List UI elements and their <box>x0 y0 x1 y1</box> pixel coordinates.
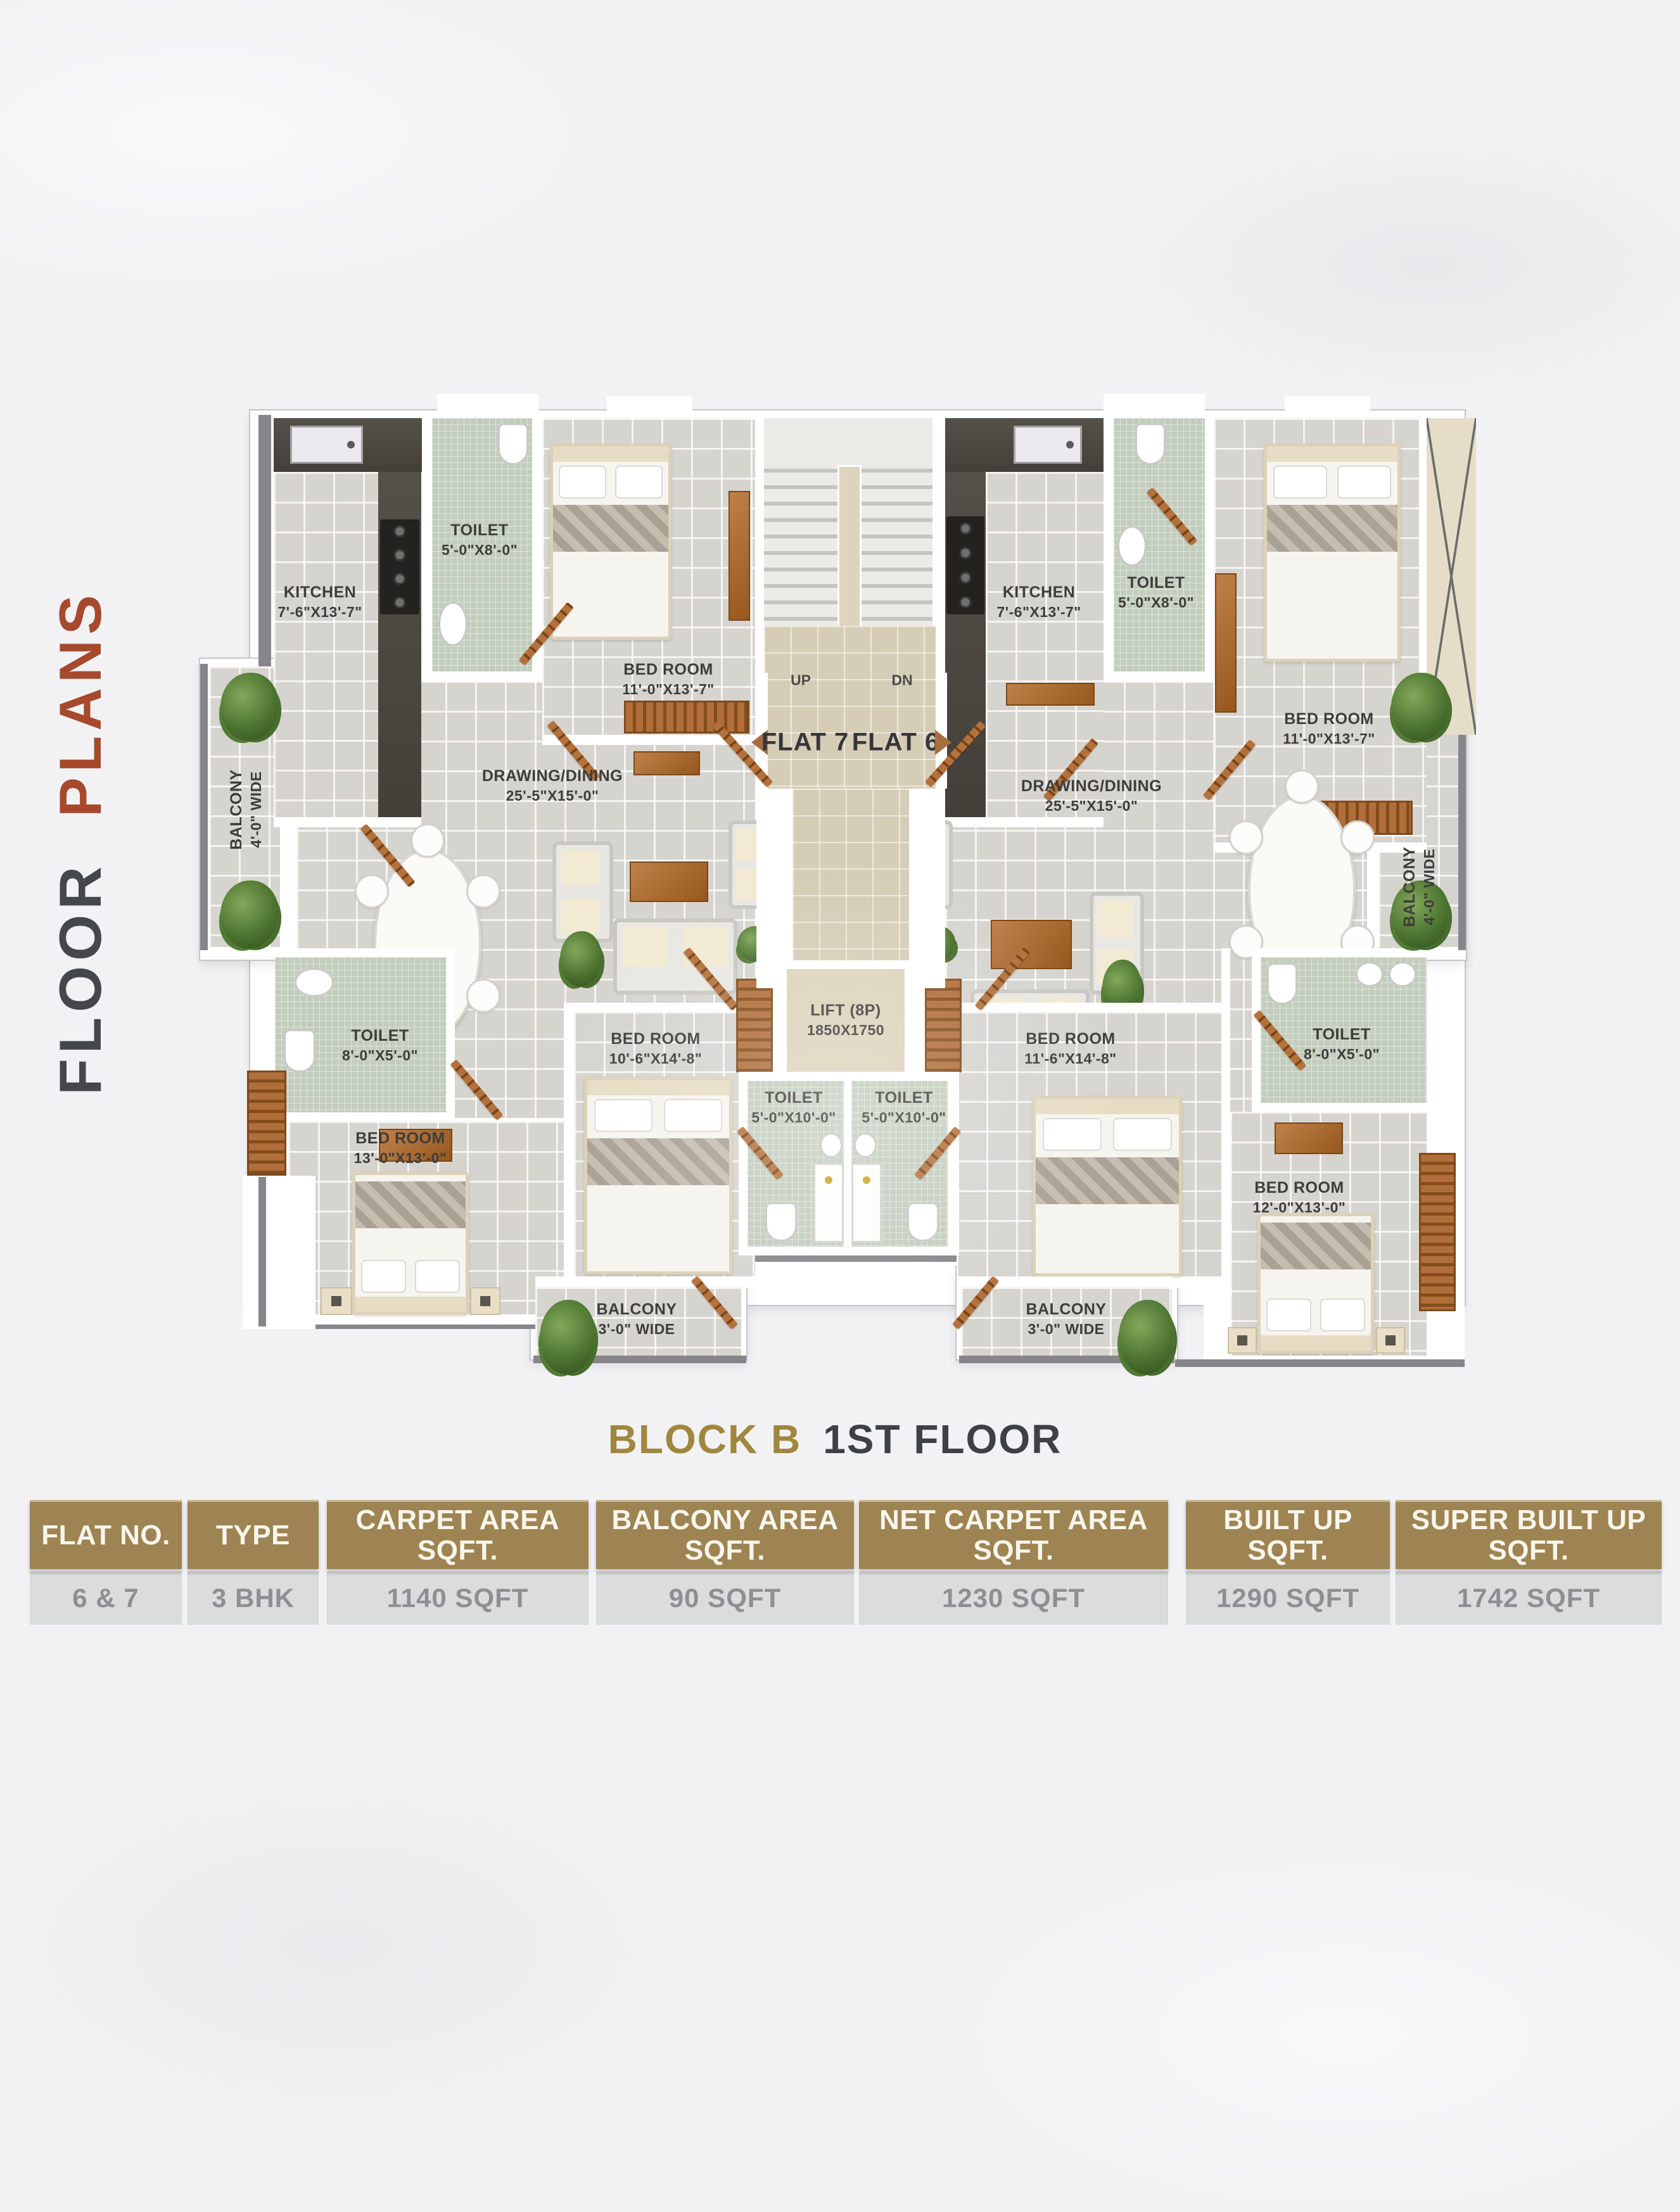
bed-headboard <box>1267 447 1397 462</box>
wall <box>957 1003 1221 1012</box>
room-label-bedroom-corner-left: BED ROOM 13'-0"X13'-0" <box>354 1128 447 1167</box>
table-cell: 1230 SQFT <box>859 1572 1168 1625</box>
plan-title-floor: 1ST FLOOR <box>823 1416 1062 1462</box>
tv-unit-right <box>1006 683 1095 706</box>
room-label-balcony-right: BALCONY 4'-0" WIDE <box>1399 846 1439 927</box>
room-dims: 5'-0"X8'-0" <box>442 540 518 559</box>
toilet-sink-icon <box>1117 526 1147 566</box>
shower-tray-icon <box>813 1163 844 1243</box>
room-dims: 5'-0"X10'-0" <box>862 1108 946 1127</box>
wall <box>1104 418 1114 682</box>
dining-chair <box>466 874 500 908</box>
toilet-sink-icon <box>1356 962 1384 987</box>
room-dims: 8'-0"X5'-0" <box>342 1046 418 1065</box>
bed-headboard <box>553 447 668 462</box>
room-dims: 13'-0"X13'-0" <box>354 1148 447 1167</box>
sofa-cushion <box>736 868 756 900</box>
table-cell: 3 BHK <box>188 1572 319 1625</box>
bed-pillow <box>559 466 606 499</box>
nightstand <box>470 1287 500 1315</box>
toilet-wc-icon <box>498 423 528 465</box>
shadow-bottom-right <box>1175 1359 1465 1367</box>
wall <box>1221 948 1230 1314</box>
table-column-type: TYPE 3 BHK <box>188 1500 319 1628</box>
wall <box>279 1314 564 1325</box>
bed-pillow <box>415 1260 460 1293</box>
bed-runner <box>587 1138 729 1185</box>
room-dims: 4'-0" WIDE <box>246 769 265 849</box>
room-label-toilet-bottom-left: TOILET 5'-0"X10'-0" <box>751 1088 836 1127</box>
room-label-bedroom-top-left: BED ROOM 11'-0"X13'-7" <box>622 659 714 699</box>
shower-tray-icon <box>851 1163 882 1243</box>
dining-chair <box>1340 820 1375 855</box>
wall <box>1252 1103 1427 1112</box>
nightstand <box>1228 1327 1257 1354</box>
room-name: DRAWING/DINING <box>1021 776 1162 797</box>
wall <box>756 789 792 988</box>
flat6-label: FLAT 6 <box>852 728 940 757</box>
table-cell: 1742 SQFT <box>1396 1572 1662 1625</box>
wall <box>1252 948 1427 957</box>
dining-chair <box>1285 770 1319 804</box>
wall <box>422 671 542 682</box>
table-header: BUILT UP SQFT. <box>1186 1500 1390 1569</box>
toilet-wc-icon <box>1267 963 1297 1005</box>
table-column-flat-no: FLAT NO. 6 & 7 <box>30 1500 182 1628</box>
plan-title-block: BLOCK B <box>608 1416 802 1462</box>
bed-headboard <box>1261 1335 1371 1351</box>
room-label-toilet-bottom-right: TOILET 5'-0"X10'-0" <box>862 1088 946 1127</box>
room-name: BED ROOM <box>1253 1178 1346 1198</box>
kitchen-sink-right <box>1014 426 1082 464</box>
room-label-bedroom-top-right: BED ROOM 11'-0"X13'-7" <box>1283 709 1375 748</box>
toilet-sink-icon <box>1389 962 1416 987</box>
toilet-wc-icon <box>765 1202 797 1242</box>
wall <box>266 948 455 957</box>
bed-headboard <box>355 1297 466 1312</box>
sofa-left-vertical <box>552 841 613 943</box>
room-name: BED ROOM <box>1024 1029 1116 1050</box>
sofa-cushion <box>561 850 599 886</box>
bed-pillow <box>1266 1299 1311 1332</box>
bed-runner <box>553 505 668 552</box>
room-dims: 5'-0"X8'-0" <box>1118 593 1194 612</box>
table-column-built-up: BUILT UP SQFT. 1290 SQFT <box>1186 1500 1390 1628</box>
lift-name: LIFT (8P) <box>807 1000 884 1021</box>
room-name: TOILET <box>1304 1024 1380 1045</box>
wall <box>446 957 455 1121</box>
toilet-sink-icon <box>820 1133 843 1158</box>
building-notch <box>243 1176 315 1329</box>
lift-dims: 1850X1750 <box>807 1020 884 1039</box>
plant-icon <box>1119 1300 1174 1375</box>
table-header: TYPE <box>188 1500 319 1569</box>
wardrobe-left-center <box>736 979 773 1072</box>
room-name: KITCHEN <box>996 582 1081 603</box>
wall-notch-outer <box>258 1177 266 1326</box>
flat7-label: FLAT 7 <box>761 728 850 757</box>
bed-headboard <box>587 1080 729 1095</box>
room-name: BALCONY <box>226 769 247 849</box>
wardrobe-left-top <box>624 701 749 734</box>
room-label-bedroom-corner-right: BED ROOM 12'-0"X13'-0" <box>1253 1178 1346 1217</box>
stove-icon <box>380 519 419 614</box>
dresser-right-top <box>1215 573 1237 713</box>
room-name: BED ROOM <box>1283 709 1375 730</box>
room-dims: 25'-5"X15'-0" <box>482 786 623 805</box>
core-corridor <box>792 789 909 960</box>
wall <box>1252 957 1261 1112</box>
kitchen-floor-right <box>986 472 1104 817</box>
stairwell <box>764 418 932 469</box>
plant-icon <box>540 1300 595 1375</box>
room-dims: 25'-5"X15'-0" <box>1021 796 1162 815</box>
wall <box>422 418 432 682</box>
bed-right-top <box>1264 443 1401 662</box>
room-dims: 5'-0"X10'-0" <box>751 1108 836 1127</box>
brochure-page: { "side_title": { "floor": "FLOOR", "pla… <box>0 0 1680 2212</box>
bed-right-center <box>1033 1096 1182 1276</box>
room-dims: 12'-0"X13'-0" <box>1253 1198 1346 1217</box>
room-name: BALCONY <box>1399 846 1420 927</box>
room-name: TOILET <box>342 1026 418 1046</box>
stair-up-label: UP <box>791 672 811 689</box>
room-label-toilet-top-right: TOILET 5'-0"X8'-0" <box>1118 573 1194 612</box>
stair-rail <box>837 465 862 628</box>
room-dims: 7'-6"X13'-7" <box>277 602 362 621</box>
coffee-table-left <box>630 861 708 902</box>
wall <box>1104 671 1214 682</box>
wall <box>909 789 945 988</box>
room-name: BED ROOM <box>609 1029 703 1050</box>
room-label-balcony-bottom-left: BALCONY 3'-0" WIDE <box>596 1299 677 1338</box>
room-dims: 11'-0"X13'-7" <box>622 680 714 699</box>
bed-pillow <box>1320 1299 1365 1332</box>
room-label-balcony-bottom-right: BALCONY 3'-0" WIDE <box>1026 1299 1106 1338</box>
room-dims: 11'-6"X14'-8" <box>1024 1049 1116 1068</box>
wall <box>535 1276 741 1287</box>
room-dims: 8'-0"X5'-0" <box>1304 1045 1380 1064</box>
dining-chair <box>355 874 389 908</box>
toilet-sink-icon <box>438 602 468 646</box>
stove-icon <box>946 516 984 614</box>
room-name: KITCHEN <box>277 582 362 603</box>
room-dims: 3'-0" WIDE <box>1026 1319 1106 1338</box>
bed-pillow <box>1273 466 1327 499</box>
toilet-wc-icon <box>284 1029 315 1072</box>
plan-title: BLOCK B1ST FLOOR <box>608 1416 1062 1463</box>
table-header: NET CARPET AREA SQFT. <box>859 1500 1168 1569</box>
stair-landing <box>764 626 936 789</box>
dining-chair <box>1229 820 1263 855</box>
table-cell: 90 SQFT <box>596 1572 854 1625</box>
wall <box>274 817 421 827</box>
toilet-wc-icon <box>1135 423 1166 465</box>
table-column-super-built-up: SUPER BUILT UP SQFT. 1742 SQFT <box>1396 1500 1662 1628</box>
wall <box>266 1112 455 1121</box>
wardrobe-right-corner <box>1419 1153 1456 1311</box>
table-header: CARPET AREA SQFT. <box>327 1500 589 1569</box>
room-label-toilet-mid-left: TOILET 8'-0"X5'-0" <box>342 1026 418 1065</box>
wall <box>945 817 1104 827</box>
bed-pillow <box>1113 1118 1172 1151</box>
sofa-cushion <box>561 898 599 934</box>
dining-chair <box>410 823 445 858</box>
room-label-toilet-top-left: TOILET 5'-0"X8'-0" <box>442 520 518 559</box>
room-name: TOILET <box>1118 573 1194 594</box>
bed-right-corner <box>1257 1213 1374 1354</box>
wardrobe-right-center <box>925 979 962 1072</box>
wardrobe-left-corner <box>247 1071 286 1176</box>
table-header: SUPER BUILT UP SQFT. <box>1396 1500 1662 1569</box>
nightstand <box>1376 1327 1405 1354</box>
bed-runner <box>1036 1157 1179 1204</box>
sofa-cushion <box>623 927 668 967</box>
toilet-wc-icon <box>907 1202 939 1242</box>
room-name: BED ROOM <box>622 659 714 680</box>
room-label-drawing-right: DRAWING/DINING 25'-5"X15'-0" <box>1021 776 1162 815</box>
room-name: BALCONY <box>596 1299 677 1320</box>
roof-ledge-left <box>607 397 692 413</box>
bed-headboard <box>1036 1099 1179 1114</box>
bed-pillow <box>361 1260 406 1293</box>
bed-pillow <box>1337 466 1390 499</box>
room-label-drawing-left: DRAWING/DINING 25'-5"X15'-0" <box>482 766 623 805</box>
wall <box>564 1003 574 1314</box>
nightstand <box>321 1287 352 1315</box>
wall-balcony-left-outer <box>200 664 208 950</box>
table-column-balcony-area: BALCONY AREA SQFT. 90 SQFT <box>596 1500 854 1628</box>
bed-runner <box>1267 505 1397 552</box>
room-label-toilet-mid-right: TOILET 8'-0"X5'-0" <box>1304 1024 1380 1064</box>
dining-chair <box>466 979 500 1013</box>
bed-pillow <box>1043 1118 1102 1151</box>
bed-runner <box>1261 1223 1371 1269</box>
arrow-right-icon <box>935 730 951 755</box>
room-label-bedroom-center-left: BED ROOM 10'-6"X14'-8" <box>609 1029 703 1068</box>
bed-pillow <box>664 1099 722 1132</box>
toilet-sink-icon <box>295 968 334 997</box>
room-name: BED ROOM <box>354 1128 447 1149</box>
table-column-carpet-area: CARPET AREA SQFT. 1140 SQFT <box>327 1500 589 1628</box>
floor-plan: KITCHEN 7'-6"X13'-7" TOILET 5'-0"X8'-0" … <box>0 0 1680 2212</box>
room-label-kitchen-left: KITCHEN 7'-6"X13'-7" <box>277 582 362 621</box>
shadow-center <box>739 1255 960 1262</box>
toilet-sink-icon <box>854 1133 877 1158</box>
bed-runner <box>355 1181 466 1228</box>
room-label-bedroom-center-right: BED ROOM 11'-6"X14'-8" <box>1024 1029 1116 1068</box>
room-dims: 7'-6"X13'-7" <box>996 602 1081 621</box>
dresser-left-top <box>729 491 750 621</box>
table-column-net-carpet-area: NET CARPET AREA SQFT. 1230 SQFT <box>859 1500 1168 1628</box>
room-name: TOILET <box>442 520 518 541</box>
kitchen-floor-left <box>274 472 378 817</box>
sofa-cushion <box>1097 901 1133 938</box>
table-cell: 1290 SQFT <box>1186 1572 1390 1625</box>
vent-shaft-left <box>437 394 538 413</box>
room-dims: 10'-6"X14'-8" <box>609 1049 703 1068</box>
bed-pillow <box>615 466 663 499</box>
room-dims: 11'-0"X13'-7" <box>1283 729 1375 748</box>
bed-left-corner <box>352 1172 469 1315</box>
table-cell: 6 & 7 <box>30 1572 182 1625</box>
stair-dn-label: DN <box>891 672 912 689</box>
tv-unit-left <box>633 751 700 775</box>
bed-pillow <box>594 1099 652 1132</box>
room-dims: 3'-0" WIDE <box>596 1319 677 1338</box>
sofa-cushion <box>736 829 756 861</box>
room-name: TOILET <box>751 1088 836 1109</box>
room-label-kitchen-right: KITCHEN 7'-6"X13'-7" <box>996 582 1081 621</box>
table-header: FLAT NO. <box>30 1500 182 1569</box>
room-name: TOILET <box>862 1088 946 1109</box>
kitchen-sink-left <box>290 426 363 464</box>
coffee-table-right <box>991 920 1072 969</box>
room-name: BALCONY <box>1026 1299 1106 1320</box>
room-dims: 4'-0" WIDE <box>1420 846 1439 927</box>
room-label-balcony-left: BALCONY 4'-0" WIDE <box>226 769 265 849</box>
wall <box>1205 418 1214 682</box>
lift-label: LIFT (8P) 1850X1750 <box>807 1000 884 1039</box>
table-header: BALCONY AREA SQFT. <box>596 1500 854 1569</box>
table-cell: 1140 SQFT <box>327 1572 589 1625</box>
bed-left-center <box>584 1077 732 1274</box>
roof-ledge-right <box>1285 397 1370 413</box>
room-name: DRAWING/DINING <box>482 766 623 787</box>
desk-right <box>1275 1122 1343 1154</box>
vent-shaft-right <box>1104 394 1205 413</box>
